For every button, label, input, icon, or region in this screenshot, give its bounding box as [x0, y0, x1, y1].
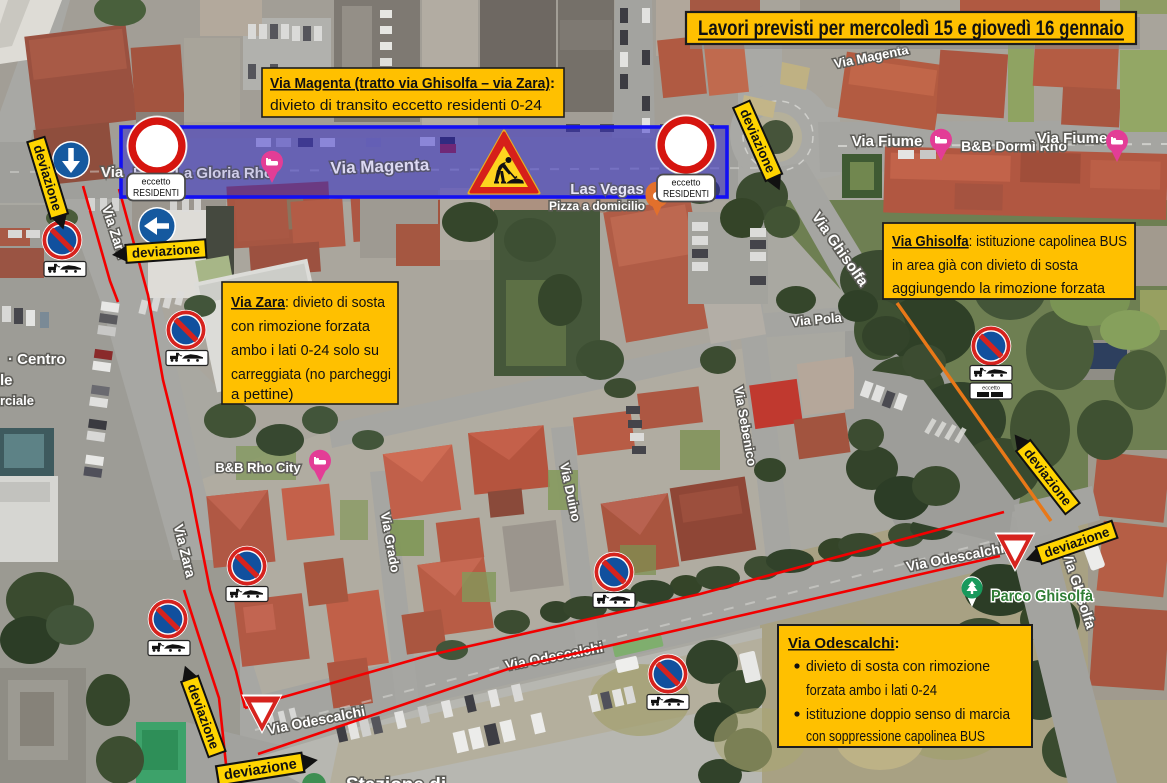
- svg-text:ambo i lati 0-24 solo su: ambo i lati 0-24 solo su: [231, 342, 379, 359]
- svg-text:Pizza a domicilio: Pizza a domicilio: [549, 199, 645, 213]
- svg-text:carreggiata (no parcheggi: carreggiata (no parcheggi: [231, 366, 391, 383]
- svg-text:Via: Via: [101, 164, 124, 181]
- svg-text:divieto di transito eccetto re: divieto di transito eccetto residenti 0-…: [270, 97, 542, 114]
- svg-text:rciale: rciale: [0, 393, 34, 408]
- svg-text:divieto di sosta con rimozione: divieto di sosta con rimozione: [806, 658, 990, 675]
- svg-text:le: le: [0, 372, 13, 389]
- svg-text:Via Ghisolfa: istituzione capo: Via Ghisolfa: istituzione capolinea BUS: [892, 233, 1127, 250]
- svg-text:Via Magenta (tratto via Ghisol: Via Magenta (tratto via Ghisolfa – via Z…: [270, 75, 555, 92]
- svg-text:Las Vegas: Las Vegas: [570, 181, 643, 198]
- svg-text:· Centro: · Centro: [8, 351, 66, 368]
- svg-text:Via Magenta: Via Magenta: [330, 155, 430, 177]
- svg-text:in area già con divieto di sos: in area già con divieto di sosta: [892, 257, 1079, 274]
- svg-text:con rimozione forzata: con rimozione forzata: [231, 318, 371, 335]
- svg-text:forzata ambo i lati 0-24: forzata ambo i lati 0-24: [806, 682, 937, 699]
- svg-text:istituzione doppio senso di ma: istituzione doppio senso di marcia: [806, 706, 1011, 723]
- svg-text:Via Fiume: Via Fiume: [1037, 130, 1108, 147]
- svg-text:Via Zara: divieto di sosta: Via Zara: divieto di sosta: [231, 294, 386, 311]
- svg-text:aggiungendo la rimozione forza: aggiungendo la rimozione forzata: [892, 280, 1106, 297]
- svg-text:B&B Rho City: B&B Rho City: [215, 460, 301, 475]
- svg-text:Lavori previsti per mercoledì: Lavori previsti per mercoledì 15 e giove…: [698, 17, 1124, 40]
- svg-text:Parco Ghisolfà: Parco Ghisolfà: [991, 588, 1093, 605]
- svg-text:Via Fiume: Via Fiume: [852, 133, 923, 150]
- svg-text:con soppressione capolinea BUS: con soppressione capolinea BUS: [806, 728, 985, 745]
- svg-text:Via Odescalchi:: Via Odescalchi:: [788, 635, 899, 652]
- svg-text:a pettine): a pettine): [231, 386, 294, 403]
- svg-text:eccetto: eccetto: [982, 386, 1000, 392]
- svg-text:Stazione di: Stazione di: [346, 775, 446, 783]
